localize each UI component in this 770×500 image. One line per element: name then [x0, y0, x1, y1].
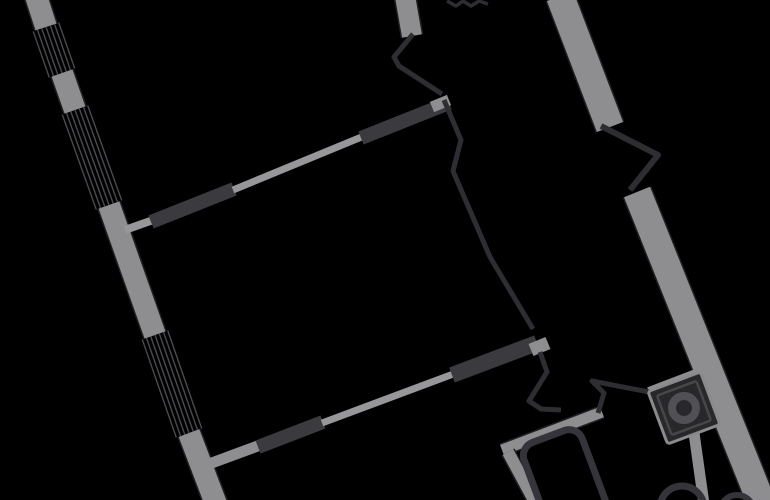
top-edge-squiggle	[447, 1, 488, 6]
floor-plan-canvas	[0, 0, 770, 500]
top-partition-zigzag	[394, 34, 442, 94]
window-glazing-3-line-3	[155, 335, 189, 433]
window-glazing-1-line-0	[59, 23, 75, 69]
toilet-bowl	[660, 486, 704, 500]
top-wall	[405, 0, 412, 36]
window-glazing-1-line-1	[55, 24, 71, 70]
window-glazing-2-line-3	[75, 110, 109, 205]
window-glazing-1-line-6	[33, 31, 49, 77]
hall-partition	[444, 100, 533, 329]
window-glazing-1-line-2	[50, 26, 66, 72]
bath-partition-right	[592, 381, 649, 413]
window-glazing-2-line-2	[79, 108, 113, 203]
window-glazing-1-line-5	[37, 30, 53, 76]
window-glazing-1-line-4	[42, 28, 58, 74]
floor-plan-viewport	[0, 0, 770, 500]
left-exterior-wall-pier-top	[36, 0, 46, 27]
interior-wall2-lintel-1	[258, 422, 323, 447]
interior-wall2-thin	[322, 373, 456, 423]
right-wall-duct-jog	[601, 126, 658, 190]
window-glazing-3-line-4	[151, 336, 185, 434]
interior-wall2-end-cap	[531, 343, 548, 350]
interior-wall2-lintel-2	[452, 343, 537, 375]
interior-wall2-stub	[209, 444, 263, 464]
window-glazing-1-line-3	[46, 27, 62, 73]
interior-wall1-thin	[233, 136, 364, 190]
left-exterior-wall-pier-2	[62, 73, 75, 110]
window-glazing-3-line-2	[159, 334, 193, 432]
interior-wall1-lintel-1	[151, 189, 234, 222]
bath-partition-left	[529, 352, 561, 410]
window-glazing-2-line-4	[71, 112, 105, 207]
